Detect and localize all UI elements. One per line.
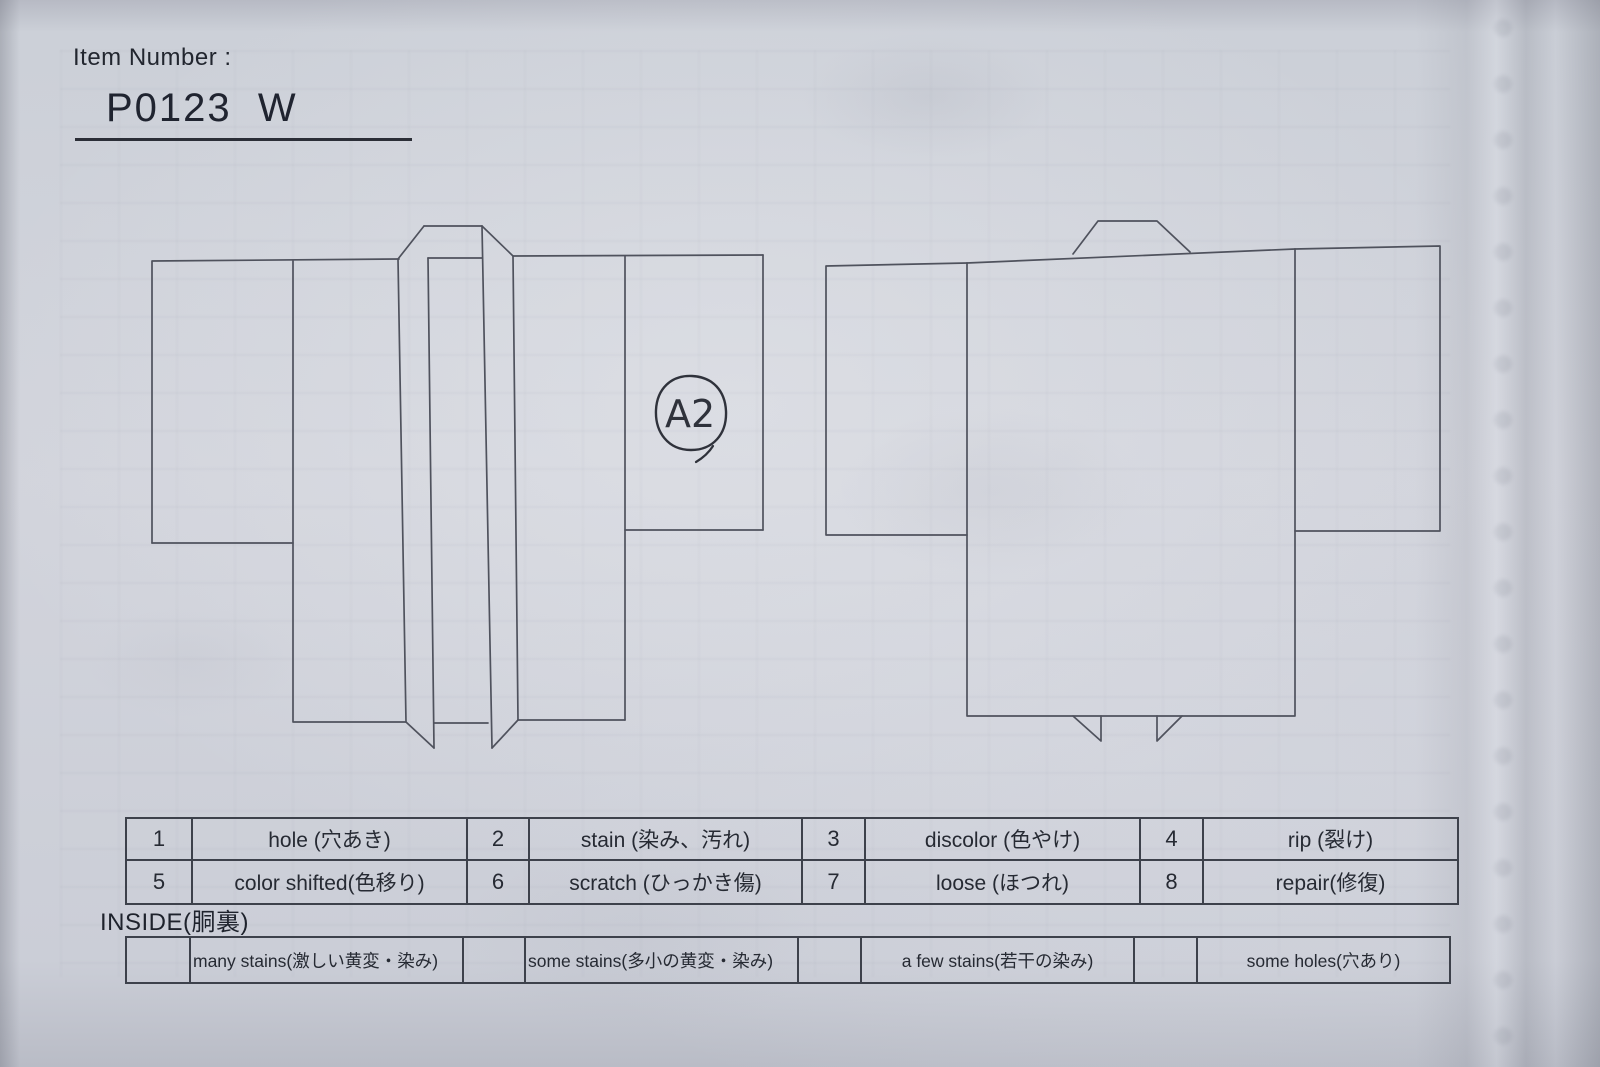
defect-code-cell: 8 [1141, 861, 1204, 903]
inside-condition-cell: some stains(多小の黄変・染み) [526, 938, 799, 982]
back-collar-end-left [1073, 716, 1101, 741]
defect-code-cell: 6 [468, 861, 530, 903]
inside-condition-cell: a few stains(若干の染み) [862, 938, 1135, 982]
defect-code-cell: 4 [1141, 819, 1204, 861]
back-left-sleeve [826, 263, 967, 535]
defect-label-cell: scratch (ひっかき傷) [530, 861, 803, 903]
defect-label-cell: repair(修復) [1204, 861, 1457, 903]
inside-check-cell [1135, 938, 1198, 982]
defect-code-cell: 3 [803, 819, 866, 861]
inside-condition-table: many stains(激しい黄変・染み) some stains(多小の黄変・… [125, 936, 1451, 984]
front-collar-left-inner [428, 258, 434, 748]
defect-label-cell: hole (穴あき) [193, 819, 468, 861]
kimono-front-diagram [152, 226, 763, 748]
back-body [967, 249, 1295, 716]
scanned-inspection-sheet: Item Number : P0123 W [0, 0, 1600, 1067]
back-right-sleeve [1295, 246, 1440, 531]
defect-code-cell: 2 [468, 819, 530, 861]
front-collar-right-tip [492, 720, 518, 748]
inside-condition-cell: many stains(激しい黄変・染み) [191, 938, 464, 982]
inside-section-heading: INSIDE(胴裏) [100, 902, 249, 937]
front-left-sleeve-outline [152, 259, 399, 543]
inside-check-cell [464, 938, 526, 982]
defect-label-cell: color shifted(色移り) [193, 861, 468, 903]
defect-code-cell: 5 [127, 861, 193, 903]
defect-legend-table: 1 hole (穴あき) 2 stain (染み、汚れ) 3 discolor … [125, 817, 1459, 905]
defect-label-cell: discolor (色やけ) [866, 819, 1141, 861]
defect-code-cell: 7 [803, 861, 866, 903]
annotation-text: A2 [665, 392, 715, 436]
front-right-shoulder [513, 255, 763, 256]
defect-annotation-a2: A2 [656, 376, 726, 462]
back-collar-end-right [1157, 716, 1182, 741]
defect-label-cell: stain (染み、汚れ) [530, 819, 803, 861]
front-left-body [293, 261, 406, 722]
inside-check-cell [127, 938, 191, 982]
back-collar-trapezoid [1073, 221, 1190, 254]
inside-condition-cell: some holes(穴あり) [1198, 938, 1449, 982]
defect-code-cell: 1 [127, 819, 193, 861]
back-shoulder-line [967, 249, 1295, 263]
front-collar-right-inner [482, 226, 492, 748]
inside-check-cell [799, 938, 862, 982]
defect-label-cell: loose (ほつれ) [866, 861, 1141, 903]
defect-label-cell: rip (裂け) [1204, 819, 1457, 861]
kimono-back-diagram [826, 221, 1440, 741]
